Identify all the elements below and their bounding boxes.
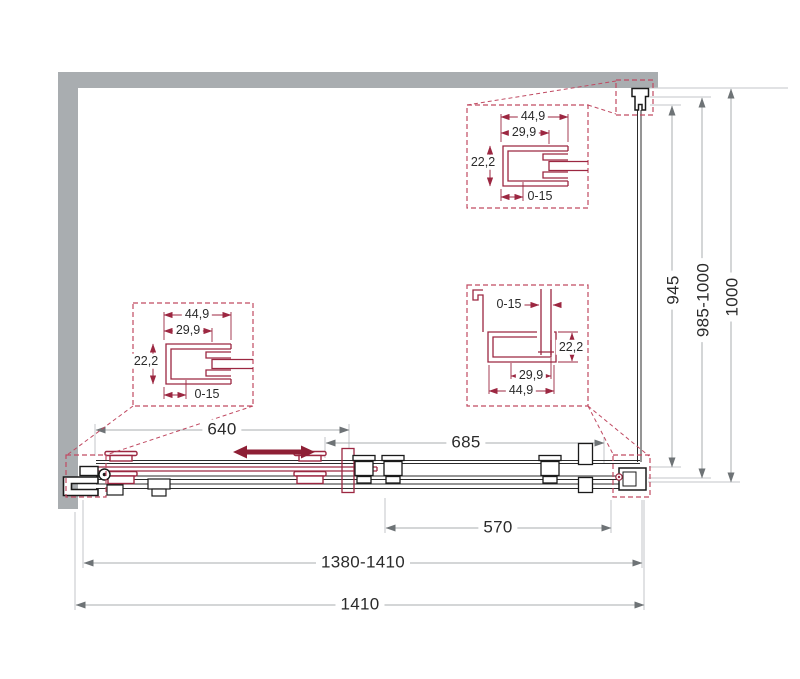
fixed-glass-panel bbox=[638, 110, 642, 462]
callout-left-width-outer: 44,9 bbox=[182, 307, 212, 322]
detail-leader-lines bbox=[67, 81, 649, 456]
callout-left-width-inner: 29,9 bbox=[173, 323, 203, 338]
callout-right-width-outer: 44,9 bbox=[506, 383, 536, 398]
dim-width-total: 1410 bbox=[335, 595, 384, 614]
dim-width-range: 1380-1410 bbox=[316, 553, 410, 572]
callout-top-adjustment: 0-15 bbox=[524, 189, 555, 204]
slide-direction-arrow bbox=[233, 446, 315, 459]
callout-right-adjustment: 0-15 bbox=[493, 297, 524, 312]
dim-door-slide: 640 bbox=[202, 420, 241, 439]
dim-fixed-section: 685 bbox=[446, 433, 485, 452]
dim-glass-height: 945 bbox=[664, 270, 683, 309]
callout-right-height: 22,2 bbox=[556, 340, 586, 355]
dim-fixed-glass: 570 bbox=[478, 518, 517, 537]
dim-height-total: 1000 bbox=[723, 272, 742, 321]
shower-enclosure-technical-drawing: 640 685 570 1380-1410 1410 945 985-1000 … bbox=[0, 0, 800, 679]
callout-top-width-inner: 29,9 bbox=[509, 125, 539, 140]
callout-top-height: 22,2 bbox=[468, 155, 498, 170]
right-end-cap bbox=[616, 468, 646, 490]
callout-top-width-outer: 44,9 bbox=[518, 109, 548, 124]
detail-source-boxes bbox=[66, 80, 653, 497]
dimension-lines bbox=[76, 89, 731, 605]
top-wall-profile bbox=[632, 89, 649, 111]
callout-left-adjustment: 0-15 bbox=[191, 387, 222, 402]
callout-right-width-inner: 29,9 bbox=[516, 368, 546, 383]
drawing-canvas bbox=[0, 0, 800, 679]
detail-callout-boxes bbox=[133, 105, 588, 406]
dim-height-range: 985-1000 bbox=[694, 258, 713, 342]
sliding-door bbox=[96, 449, 377, 493]
callout-left-height: 22,2 bbox=[131, 354, 161, 369]
pivot-roller bbox=[99, 469, 110, 480]
